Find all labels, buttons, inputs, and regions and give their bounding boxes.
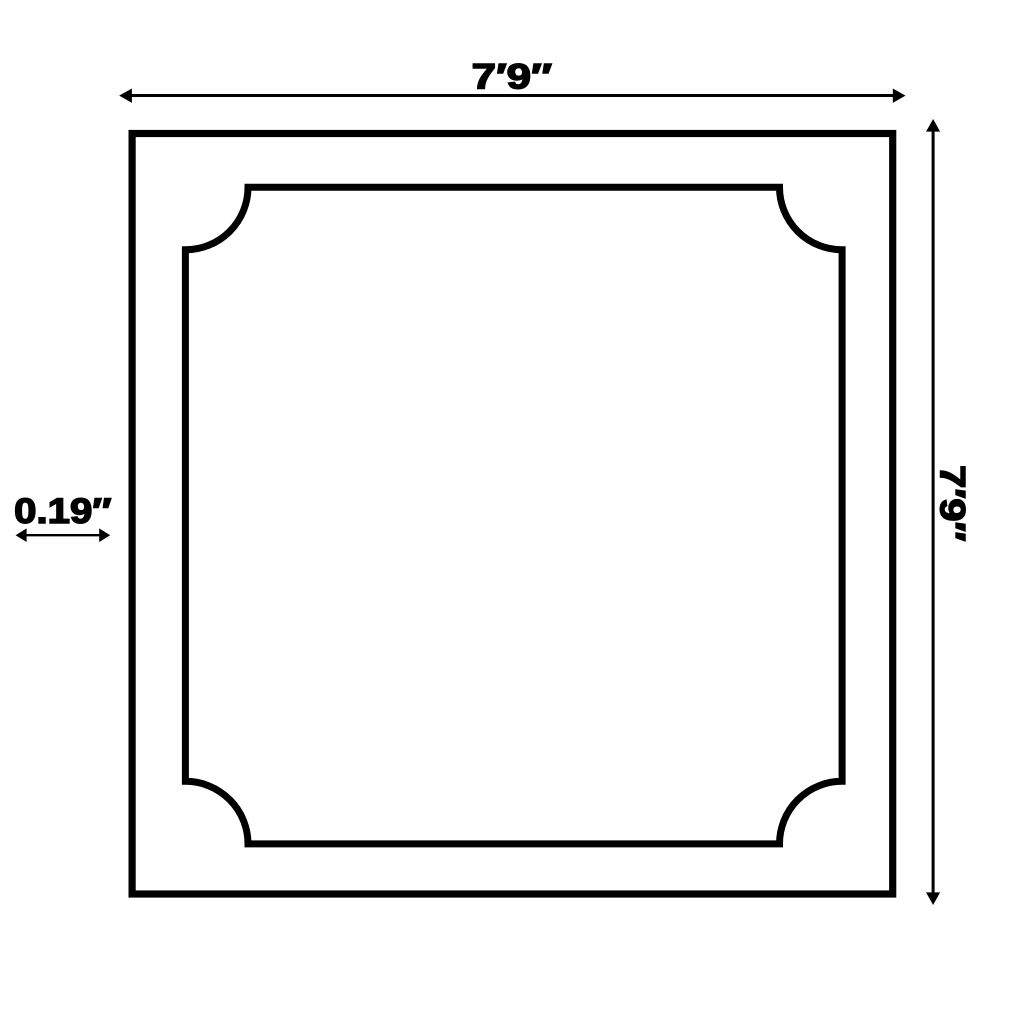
svg-text:7′9″: 7′9″ — [472, 57, 552, 96]
svg-text:7′9″: 7′9″ — [932, 465, 971, 541]
svg-text:0.19″: 0.19″ — [14, 492, 111, 531]
